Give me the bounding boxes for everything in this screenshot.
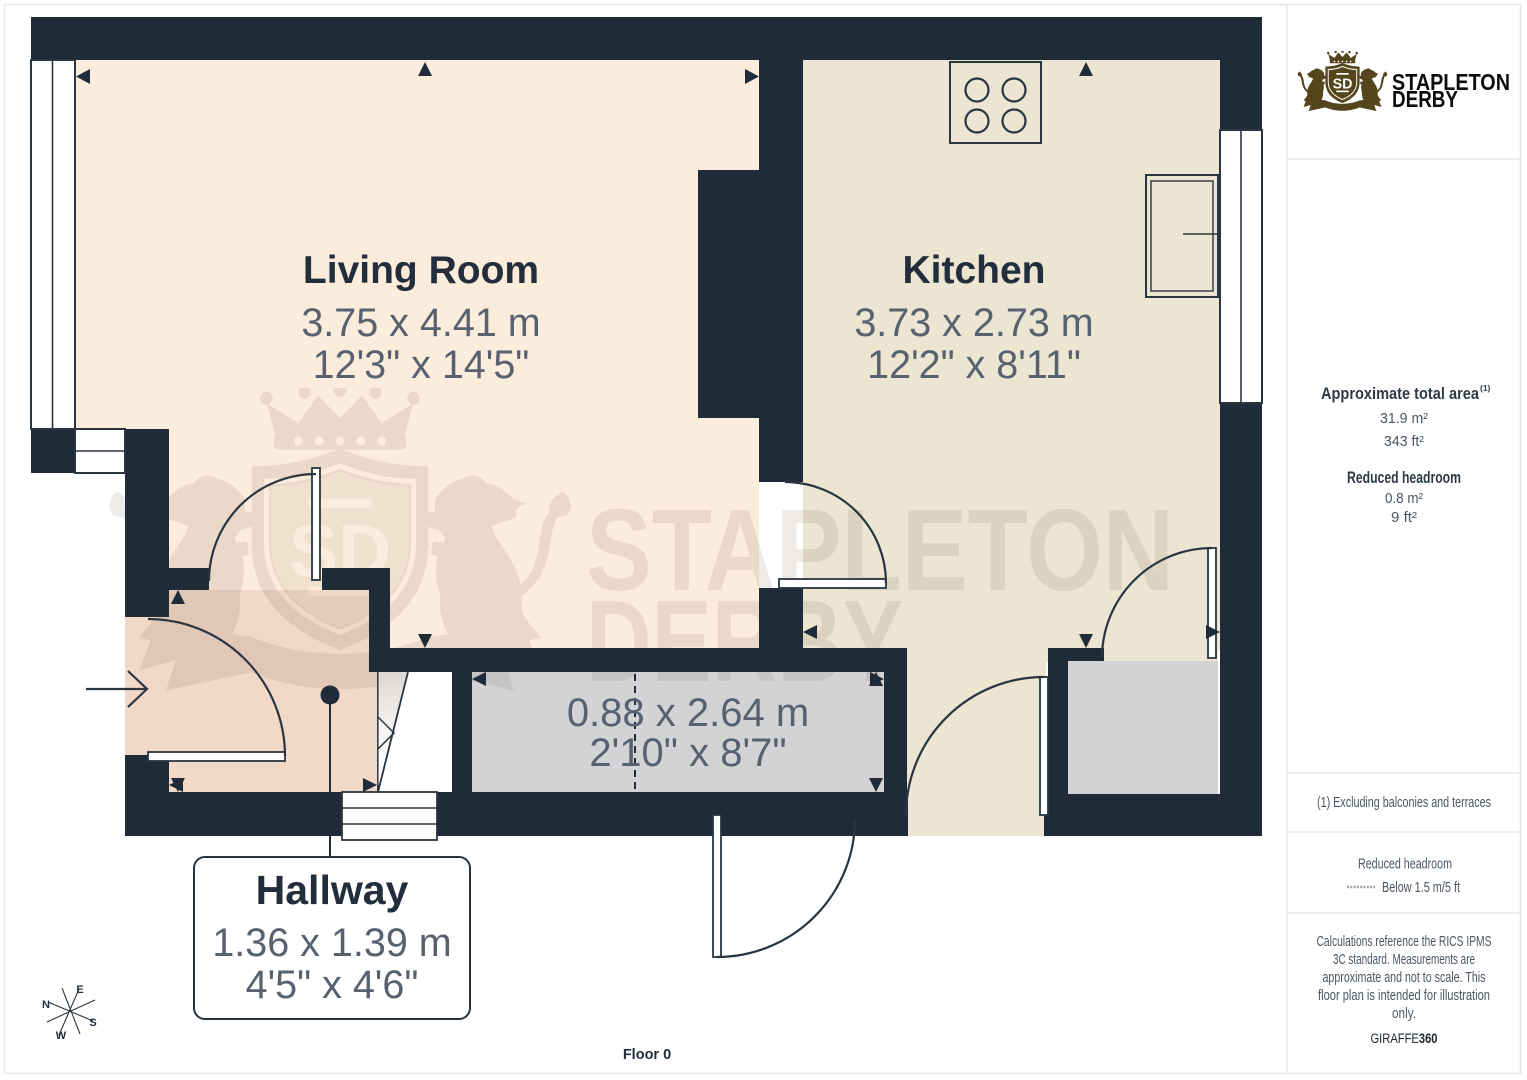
svg-text:Reduced headroom: Reduced headroom <box>1347 469 1461 487</box>
svg-text:31.9 m²: 31.9 m² <box>1380 411 1428 427</box>
svg-text:343 ft²: 343 ft² <box>1384 434 1424 450</box>
svg-text:(1): (1) <box>1480 383 1491 393</box>
svg-text:W: W <box>56 1030 67 1042</box>
svg-text:(1) Excluding balconies and te: (1) Excluding balconies and terraces <box>1317 794 1491 811</box>
svg-text:approximate and not to scale.: approximate and not to scale. This <box>1323 969 1486 986</box>
svg-text:1.36 x 1.39 m: 1.36 x 1.39 m <box>212 921 451 965</box>
svg-text:only.: only. <box>1392 1005 1416 1022</box>
svg-text:DERBY: DERBY <box>1392 86 1458 112</box>
svg-text:3C standard. Measurements are: 3C standard. Measurements are <box>1333 951 1475 968</box>
svg-text:Hallway: Hallway <box>256 867 409 913</box>
svg-text:Reduced headroom: Reduced headroom <box>1358 856 1452 873</box>
svg-text:12'3" x 14'5": 12'3" x 14'5" <box>313 343 530 387</box>
svg-text:floor plan is intended for ill: floor plan is intended for illustration <box>1318 987 1490 1004</box>
svg-text:2'10" x 8'7": 2'10" x 8'7" <box>589 731 786 775</box>
svg-text:GIRAFFE360: GIRAFFE360 <box>1371 1031 1438 1046</box>
svg-text:Kitchen: Kitchen <box>902 249 1045 292</box>
svg-text:12'2" x 8'11": 12'2" x 8'11" <box>867 343 1081 387</box>
svg-text:3.73 x 2.73 m: 3.73 x 2.73 m <box>854 301 1093 345</box>
svg-text:Below 1.5 m/5 ft: Below 1.5 m/5 ft <box>1382 879 1461 896</box>
svg-text:0.88 x 2.64 m: 0.88 x 2.64 m <box>567 691 809 735</box>
svg-text:N: N <box>42 999 50 1011</box>
svg-text:4'5" x 4'6": 4'5" x 4'6" <box>246 963 419 1007</box>
svg-text:3.75 x 4.41 m: 3.75 x 4.41 m <box>301 301 540 345</box>
svg-text:Approximate total area: Approximate total area <box>1321 385 1480 403</box>
svg-text:0.8 m²: 0.8 m² <box>1385 491 1423 507</box>
svg-text:DERBY: DERBY <box>586 576 903 706</box>
svg-text:S: S <box>89 1017 96 1029</box>
svg-text:Floor 0: Floor 0 <box>623 1047 671 1063</box>
svg-text:Living Room: Living Room <box>303 249 539 292</box>
svg-text:Calculations reference the RIC: Calculations reference the RICS IPMS <box>1317 933 1492 950</box>
svg-text:9 ft²: 9 ft² <box>1391 510 1417 526</box>
svg-text:E: E <box>76 984 83 996</box>
